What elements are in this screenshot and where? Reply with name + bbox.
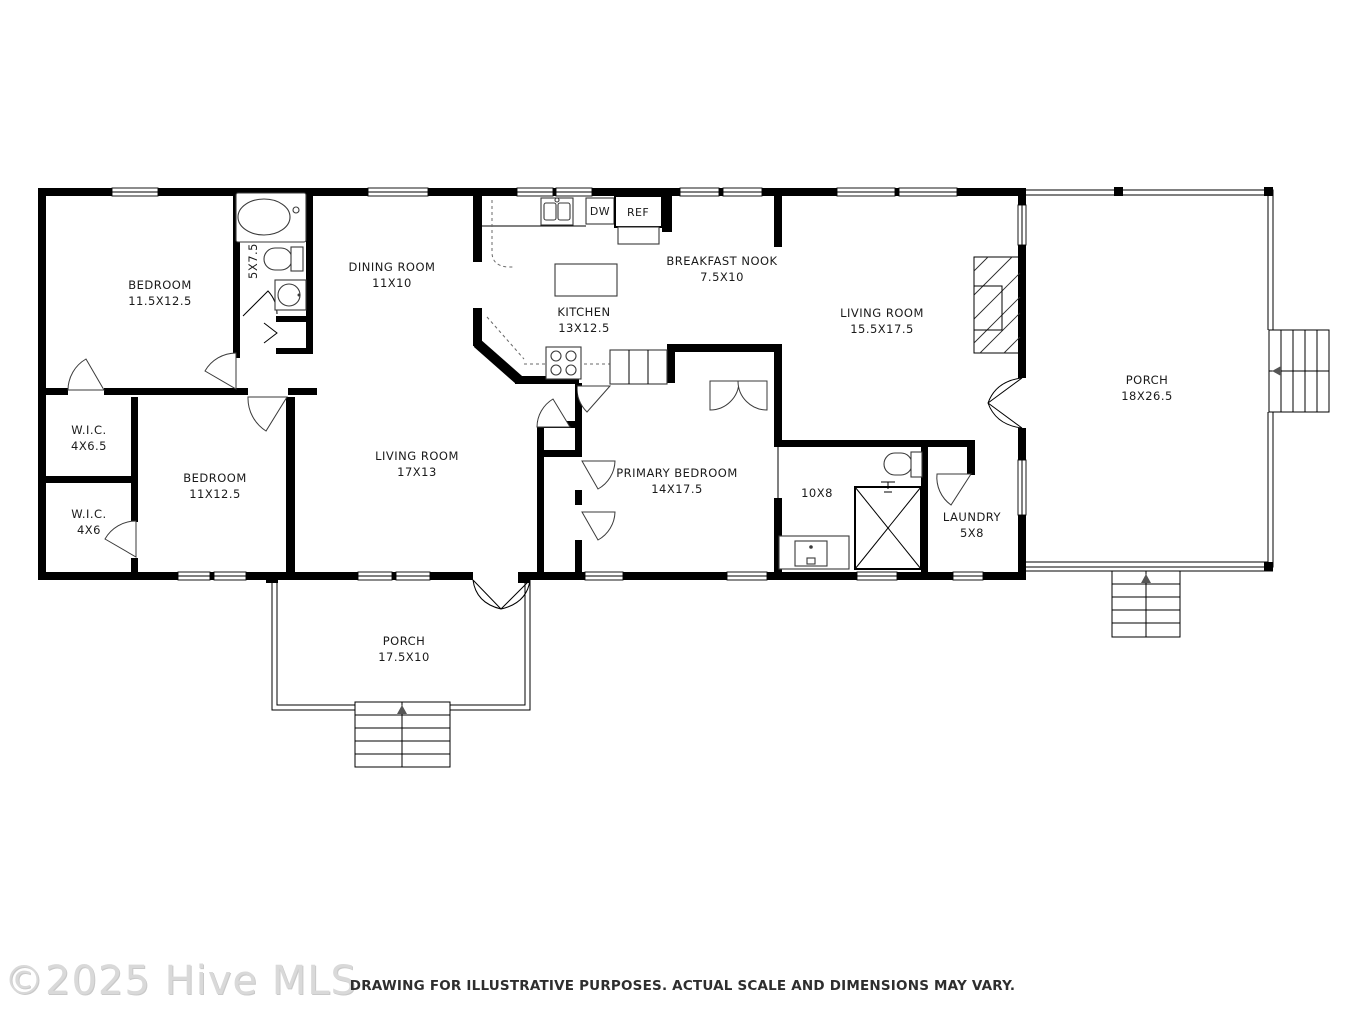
refrigerator-label: REF [627, 206, 649, 219]
svg-text:BREAKFAST NOOK: BREAKFAST NOOK [666, 254, 777, 268]
svg-text:15.5X17.5: 15.5X17.5 [850, 322, 914, 336]
bottom-porch [266, 572, 530, 767]
dishwasher-box: DW [586, 198, 614, 224]
door-fan-bottom-porch [473, 580, 530, 609]
svg-text:BEDROOM: BEDROOM [183, 471, 247, 485]
toilet [884, 452, 922, 477]
porch-side-stairs [1269, 330, 1329, 412]
door-arc-bedroom2 [248, 397, 287, 431]
svg-text:4X6: 4X6 [77, 523, 101, 537]
door-fan-living-porch [988, 378, 1022, 428]
svg-text:W.I.C.: W.I.C. [71, 423, 106, 437]
room-label-dining: DINING ROOM 11X10 [349, 260, 436, 290]
room-label-wic2: W.I.C. 4X6 [71, 507, 106, 537]
porch-post [266, 572, 278, 583]
bathroom2-fixtures [779, 452, 922, 569]
stairs-arrow-icon [397, 705, 407, 714]
counter-peninsula [610, 350, 667, 384]
vanity-sink [779, 536, 849, 569]
svg-text:14X17.5: 14X17.5 [651, 482, 703, 496]
svg-text:PORCH: PORCH [1126, 373, 1169, 387]
svg-text:W.I.C.: W.I.C. [71, 507, 106, 521]
window-icon [517, 188, 553, 196]
porch-entry-stairs [355, 702, 450, 767]
shower [855, 482, 921, 569]
door-arc-bath1 [205, 353, 236, 389]
window-icon [727, 572, 767, 580]
window-icon [178, 572, 210, 580]
door-arc-primary-right [738, 381, 767, 410]
room-label-porch-bottom: PORCH 17.5X10 [378, 634, 430, 664]
room-label-living2: LIVING ROOM 17X13 [375, 449, 459, 479]
closet-bifold-chevron [264, 323, 277, 343]
door-arc-laundry [937, 474, 971, 505]
room-label-laundry: LAUNDRY 5X8 [943, 510, 1002, 540]
svg-text:LIVING ROOM: LIVING ROOM [375, 449, 459, 463]
room-label-bath1: 5X7.5 [246, 243, 260, 279]
svg-text:LIVING ROOM: LIVING ROOM [840, 306, 924, 320]
room-label-porch-right: PORCH 18X26.5 [1121, 373, 1173, 403]
stove [546, 347, 581, 379]
svg-text:17.5X10: 17.5X10 [378, 650, 430, 664]
svg-text:13X12.5: 13X12.5 [558, 321, 610, 335]
svg-text:LAUNDRY: LAUNDRY [943, 510, 1002, 524]
window-icon [1018, 205, 1026, 245]
window-icon [112, 188, 158, 196]
window-icon [368, 188, 428, 196]
disclaimer-text: DRAWING FOR ILLUSTRATIVE PURPOSES. ACTUA… [0, 978, 1365, 994]
svg-text:11X10: 11X10 [372, 276, 412, 290]
room-label-primary: PRIMARY BEDROOM 14X17.5 [616, 466, 738, 496]
room-label-kitchen: KITCHEN 13X12.5 [557, 305, 610, 335]
window-icon [585, 572, 623, 580]
toilet [264, 247, 303, 271]
right-porch [1026, 187, 1329, 637]
room-label-bedroom2: BEDROOM 11X12.5 [183, 471, 247, 501]
svg-text:PORCH: PORCH [383, 634, 426, 648]
window-icon [396, 572, 430, 580]
window-icon [857, 572, 897, 580]
svg-text:18X26.5: 18X26.5 [1121, 389, 1173, 403]
stairs-arrow-icon [1141, 574, 1151, 583]
fireplace [974, 257, 1020, 353]
svg-text:PRIMARY BEDROOM: PRIMARY BEDROOM [616, 466, 738, 480]
svg-text:7.5X10: 7.5X10 [700, 270, 744, 284]
floor-plan-drawing: DW REF [0, 0, 1365, 1024]
window-icon [1018, 460, 1026, 515]
floor-plan-page: DW REF [0, 0, 1365, 1024]
window-icon [680, 188, 719, 196]
room-label-bath2: 10X8 [801, 486, 833, 500]
door-arc-hall [537, 399, 570, 427]
window-icon [723, 188, 762, 196]
kitchen-island [555, 264, 617, 296]
window-icon [899, 188, 957, 196]
bathtub [236, 193, 306, 242]
svg-text:11.5X12.5: 11.5X12.5 [128, 294, 192, 308]
room-label-living-main: LIVING ROOM 15.5X17.5 [840, 306, 924, 336]
door-arc-primary-left [710, 381, 739, 410]
svg-text:KITCHEN: KITCHEN [557, 305, 610, 319]
refrigerator-box: REF [615, 196, 662, 244]
svg-text:17X13: 17X13 [397, 465, 437, 479]
porch-bottom-stairs [1112, 571, 1180, 637]
door-arc-bath1-inner [243, 291, 277, 316]
window-icon [556, 188, 592, 196]
porch-post [1264, 187, 1273, 196]
porch-post [518, 572, 530, 583]
interior-walls [38, 196, 975, 580]
porch-post [1264, 562, 1273, 571]
kitchen-fixtures: DW REF [481, 196, 667, 384]
window-icon [358, 572, 392, 580]
stairs-arrow-icon [1272, 366, 1281, 376]
door-arc-closet2 [582, 512, 615, 540]
window-icon [837, 188, 895, 196]
svg-text:4X6.5: 4X6.5 [71, 439, 107, 453]
room-label-bedroom1: BEDROOM 11.5X12.5 [128, 278, 192, 308]
door-arc-wic2 [105, 521, 136, 557]
svg-text:BEDROOM: BEDROOM [128, 278, 192, 292]
svg-text:5X8: 5X8 [960, 526, 984, 540]
door-arc-bedroom1 [68, 359, 104, 390]
dishwasher-label: DW [590, 205, 610, 218]
room-label-wic1: W.I.C. 4X6.5 [71, 423, 107, 453]
kitchen-sink [541, 198, 573, 225]
svg-text:11X12.5: 11X12.5 [189, 487, 241, 501]
bathroom-sink [275, 280, 306, 310]
window-icon [953, 572, 983, 580]
porch-post [1114, 187, 1123, 196]
room-label-breakfast-nook: BREAKFAST NOOK 7.5X10 [666, 254, 777, 284]
window-icon [214, 572, 246, 580]
svg-text:DINING ROOM: DINING ROOM [349, 260, 436, 274]
door-arc-closet1 [582, 461, 615, 489]
